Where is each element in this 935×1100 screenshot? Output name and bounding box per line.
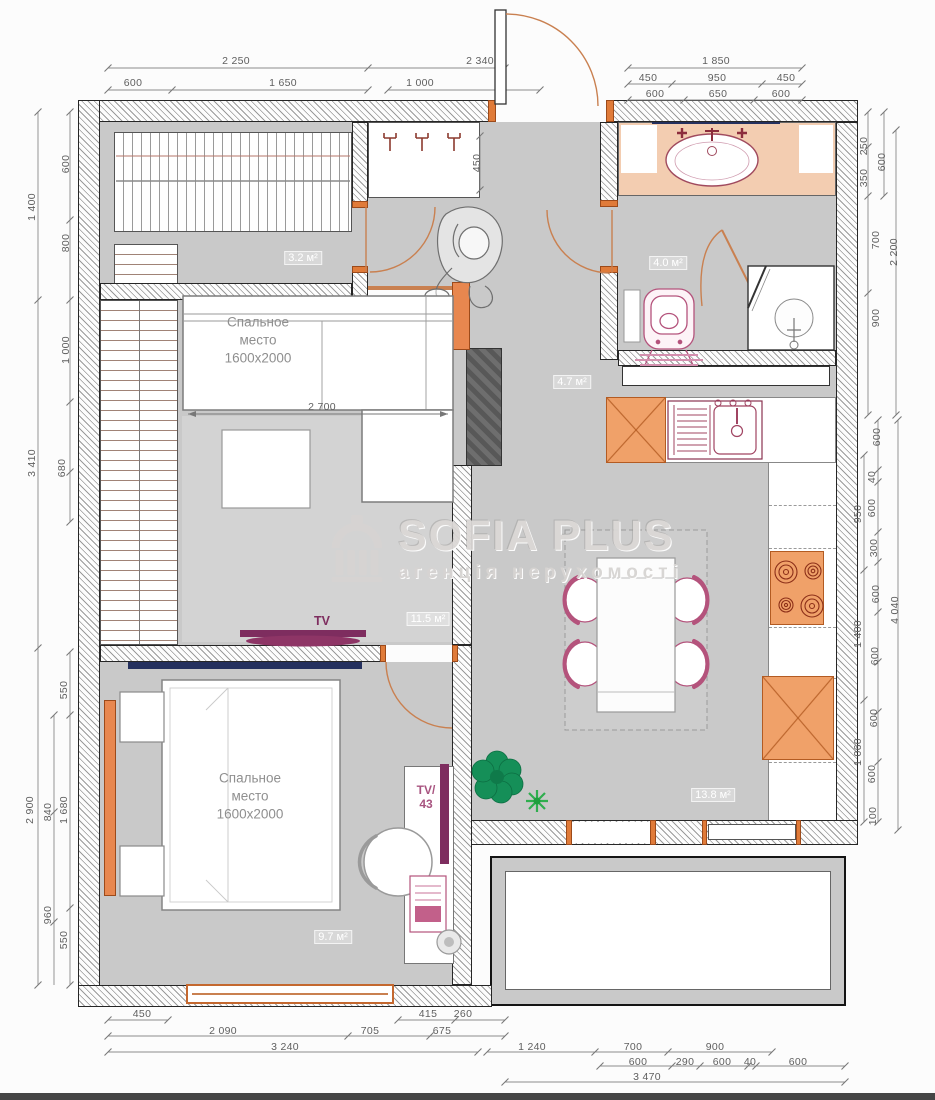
dim-label: 550 (58, 931, 70, 949)
dim-label: 1 400 (26, 193, 38, 221)
dim-label: 250 (858, 137, 870, 155)
dim-label: 700 (870, 231, 882, 249)
dim-label: 40 (866, 471, 878, 483)
dim-label: 900 (870, 309, 882, 327)
dim-label: 950 (708, 72, 726, 84)
dim-label: 415 (419, 1008, 437, 1020)
dim-label: 700 (624, 1041, 642, 1053)
furniture-label: Спальноеместо1600x2000 (225, 313, 292, 366)
area-label-kitchen-dining: 13.8 м² (691, 788, 735, 802)
dim-label: 705 (361, 1025, 379, 1037)
dim-label: 2 200 (888, 238, 900, 266)
floor-plan: SOFIA PLUS агенція нерухомості 2 2506001… (0, 0, 935, 1100)
furniture-label: Спальноеместо1600x2000 (217, 769, 284, 822)
dim-label: 2 700 (308, 401, 336, 413)
dim-label: 650 (709, 88, 727, 100)
dim-label: 1 000 (406, 77, 434, 89)
area-label-living-room: 11.5 м² (407, 612, 450, 626)
dim-label: 600 (871, 428, 883, 446)
furniture-label: TV/43 (417, 784, 436, 812)
dim-label: 3 470 (633, 1071, 661, 1083)
dim-label: 40 (744, 1056, 756, 1068)
dim-label: 3 240 (271, 1041, 299, 1053)
dim-label: 2 340 (466, 55, 494, 67)
dim-label: 1 850 (702, 55, 730, 67)
dim-label: 450 (133, 1008, 151, 1020)
bottom-bar (0, 1093, 935, 1100)
dim-label: 450 (777, 72, 795, 84)
dim-label: 260 (454, 1008, 472, 1020)
dim-label: 900 (706, 1041, 724, 1053)
dim-label: 600 (866, 765, 878, 783)
dim-label: 840 (42, 803, 54, 821)
dim-label: 550 (58, 681, 70, 699)
area-label-bathroom: 4.0 м² (649, 256, 687, 270)
dim-label: 600 (772, 88, 790, 100)
furniture-label: TV (314, 614, 330, 628)
dim-label: 1 060 (852, 738, 864, 766)
dim-label: 300 (868, 539, 880, 557)
area-label-hallway: 4.7 м² (553, 375, 591, 389)
dim-label: 950 (852, 505, 864, 523)
dim-label: 600 (124, 77, 142, 89)
labels-layer: 2 2506001 6502 3401 0001 850450950450600… (0, 0, 935, 1100)
dim-label: 600 (868, 709, 880, 727)
dim-label: 450 (471, 154, 483, 172)
dim-label: 1 680 (58, 796, 70, 824)
dim-label: 800 (60, 234, 72, 252)
dim-label: 1 240 (518, 1041, 546, 1053)
dim-label: 675 (433, 1025, 451, 1037)
dim-label: 2 900 (24, 796, 36, 824)
dim-label: 4 040 (889, 596, 901, 624)
dim-label: 2 090 (209, 1025, 237, 1037)
dim-label: 960 (42, 906, 54, 924)
dim-label: 600 (866, 499, 878, 517)
dim-label: 100 (867, 807, 879, 825)
dim-label: 600 (789, 1056, 807, 1068)
dim-label: 600 (876, 153, 888, 171)
dim-label: 600 (60, 155, 72, 173)
dim-label: 1 400 (852, 620, 864, 648)
dim-label: 1 000 (60, 336, 72, 364)
area-label-closet: 3.2 м² (284, 251, 322, 265)
dim-label: 1 650 (269, 77, 297, 89)
dim-label: 680 (56, 459, 68, 477)
dim-label: 2 250 (222, 55, 250, 67)
dim-label: 600 (646, 88, 664, 100)
dim-label: 600 (870, 585, 882, 603)
area-label-bedroom: 9.7 м² (314, 930, 352, 944)
dim-label: 3 410 (26, 449, 38, 477)
dim-label: 600 (869, 647, 881, 665)
dim-label: 600 (713, 1056, 731, 1068)
dim-label: 600 (629, 1056, 647, 1068)
dim-label: 350 (858, 169, 870, 187)
dim-label: 290 (676, 1056, 694, 1068)
dim-label: 450 (639, 72, 657, 84)
